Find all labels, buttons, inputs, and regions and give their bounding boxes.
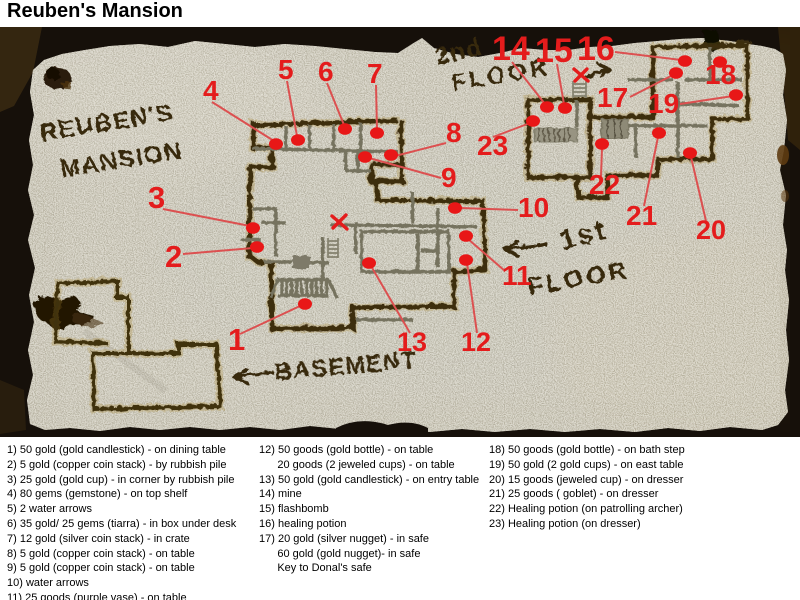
- svg-text:7: 7: [367, 58, 383, 89]
- svg-text:21: 21: [626, 200, 657, 231]
- svg-text:6: 6: [318, 56, 334, 87]
- svg-text:8: 8: [446, 117, 462, 148]
- svg-text:1: 1: [228, 322, 245, 357]
- svg-text:19: 19: [648, 88, 679, 119]
- svg-text:18: 18: [705, 59, 736, 90]
- svg-text:5: 5: [278, 54, 294, 85]
- svg-text:20: 20: [696, 215, 726, 245]
- svg-text:13: 13: [397, 327, 427, 357]
- svg-text:17: 17: [597, 82, 628, 113]
- svg-text:4: 4: [203, 75, 219, 106]
- svg-text:2: 2: [165, 239, 182, 274]
- svg-text:12: 12: [461, 327, 491, 357]
- svg-text:23: 23: [477, 130, 508, 161]
- svg-text:9: 9: [441, 162, 457, 193]
- svg-text:16: 16: [577, 30, 615, 68]
- svg-text:3: 3: [148, 180, 165, 215]
- svg-text:14: 14: [492, 30, 530, 68]
- svg-text:22: 22: [589, 169, 620, 200]
- svg-text:11: 11: [502, 260, 532, 291]
- svg-text:15: 15: [535, 32, 573, 70]
- svg-text:10: 10: [518, 192, 549, 223]
